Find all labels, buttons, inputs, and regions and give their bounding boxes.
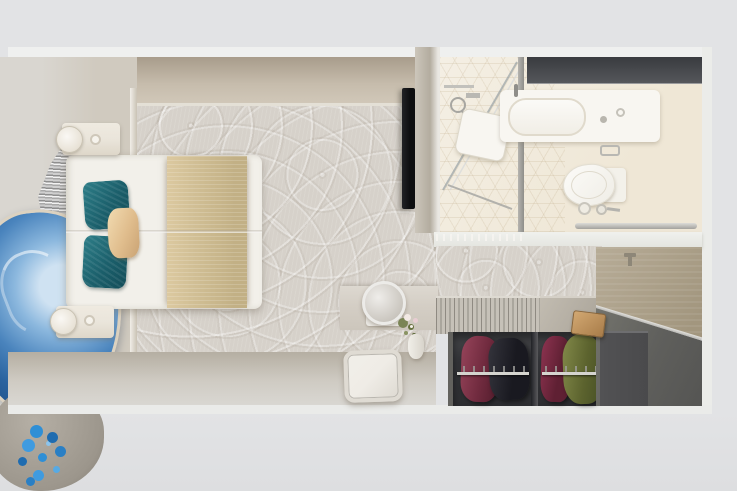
carpet-fringe bbox=[436, 234, 522, 241]
towel-rail bbox=[575, 223, 697, 229]
white-stool bbox=[343, 349, 403, 403]
bedroom-bathroom-wall bbox=[415, 47, 440, 233]
vase-flowers bbox=[404, 314, 411, 321]
outer-wall-right bbox=[702, 47, 712, 413]
outer-wall-bottom bbox=[8, 405, 712, 414]
door-handle bbox=[624, 253, 636, 257]
wall-tv bbox=[402, 88, 415, 209]
vanity-counter bbox=[500, 90, 660, 142]
toilet-paper-holder bbox=[600, 145, 620, 156]
cabin-floorplan-render bbox=[0, 0, 737, 491]
outer-wall-top bbox=[8, 47, 712, 57]
lamp-bottom bbox=[50, 308, 77, 335]
wooden-stool bbox=[571, 310, 607, 338]
clothes-rail-left bbox=[457, 372, 529, 375]
waste-bin bbox=[578, 202, 591, 215]
flower-vase bbox=[408, 334, 424, 359]
entry-cabinet bbox=[600, 331, 648, 406]
sink-basin bbox=[508, 98, 586, 136]
lamp-top bbox=[56, 126, 83, 153]
entry-vestibule bbox=[596, 247, 702, 406]
open-wardrobe bbox=[448, 332, 612, 406]
closet-divider bbox=[531, 332, 538, 406]
closet-top-slatted bbox=[436, 296, 540, 334]
toilet-seat bbox=[570, 170, 608, 200]
toilet-brush bbox=[596, 204, 607, 215]
tan-accent-pillow bbox=[107, 207, 141, 259]
blue-flowers bbox=[30, 425, 43, 438]
bathroom bbox=[440, 57, 702, 232]
shower-chrome-post bbox=[518, 57, 524, 232]
tumbler bbox=[616, 108, 625, 117]
mattress-seam bbox=[66, 230, 262, 233]
soap-dispenser bbox=[600, 116, 607, 123]
faucet bbox=[514, 84, 518, 97]
lamp-knob-top bbox=[90, 134, 101, 145]
lamp-knob-bottom bbox=[84, 315, 95, 326]
